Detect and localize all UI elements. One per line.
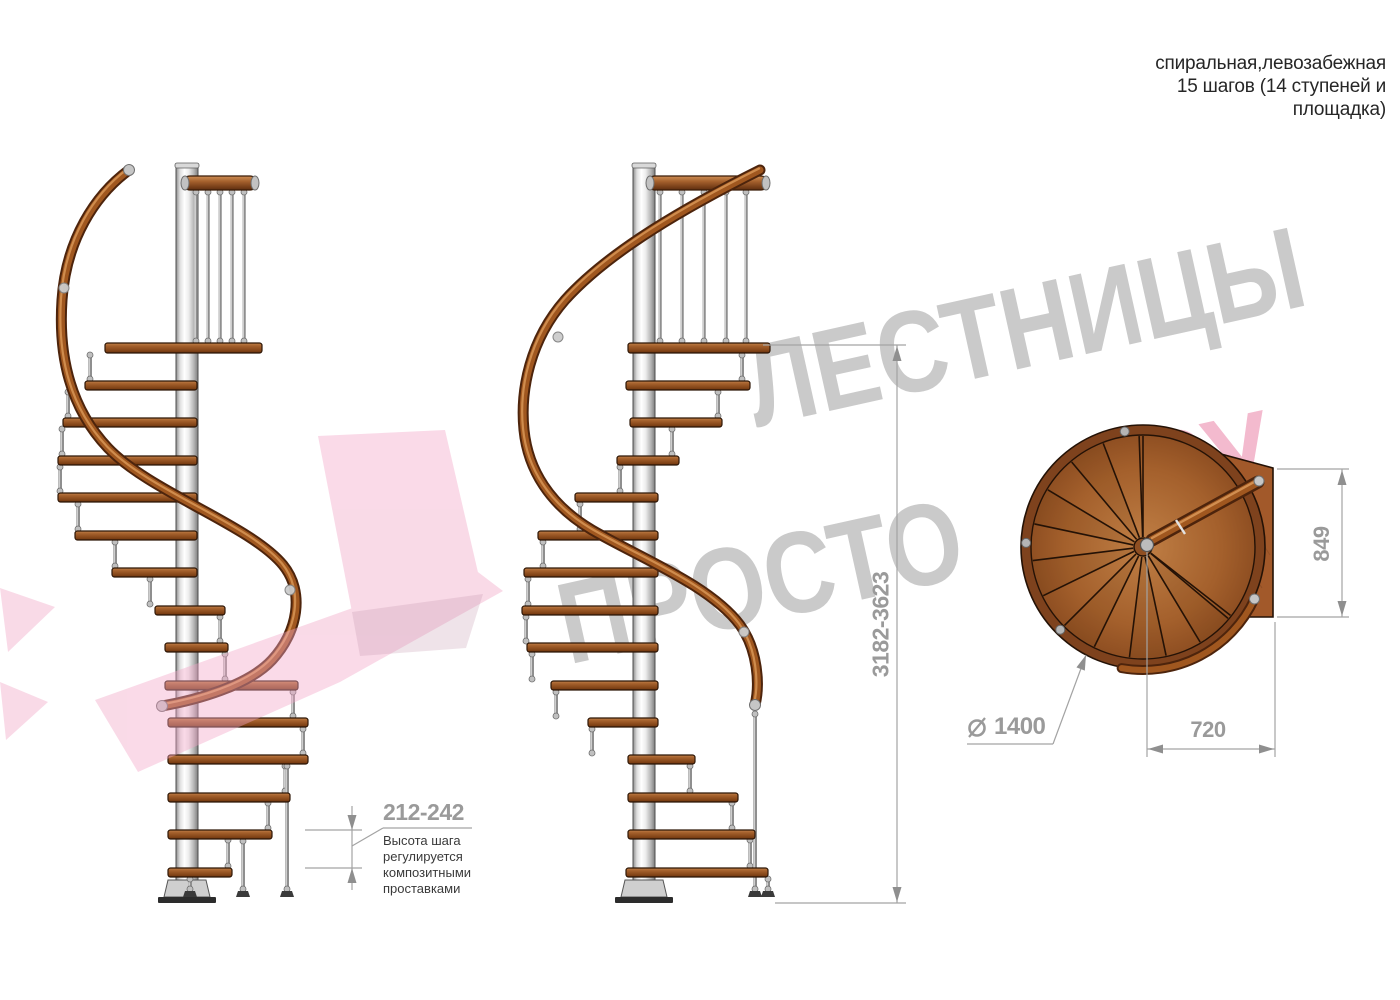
dimension-arrow xyxy=(1148,745,1163,754)
baluster-node xyxy=(529,676,535,682)
tread xyxy=(112,568,197,577)
tread xyxy=(626,868,768,877)
dimension-arrow xyxy=(893,887,902,902)
dimension-arrow xyxy=(1259,745,1274,754)
note-line-1: Высота шага xyxy=(383,833,471,849)
tread xyxy=(628,793,738,802)
diameter-icon xyxy=(966,715,988,739)
dimension-arrow xyxy=(893,346,902,361)
tread xyxy=(575,493,658,502)
step-height-note: Высота шага регулируется композитными пр… xyxy=(383,833,471,897)
tread xyxy=(75,531,197,540)
baluster-foot xyxy=(183,891,197,897)
tread xyxy=(551,681,658,690)
dim-step-height: 212-242 xyxy=(383,799,464,826)
pole-top-ball xyxy=(1141,539,1154,552)
dimension-line xyxy=(352,828,383,846)
base-plate xyxy=(615,897,673,903)
tread xyxy=(628,755,695,764)
tread xyxy=(522,606,658,615)
dim-radius-to-edge: 720 xyxy=(1168,717,1248,743)
baluster-foot xyxy=(748,891,762,897)
rim-baluster-dot xyxy=(1120,427,1129,436)
handrail-joint xyxy=(59,283,69,293)
tread xyxy=(626,381,750,390)
tread xyxy=(168,755,308,764)
handrail-joint xyxy=(739,627,749,637)
dimension-arrow xyxy=(1338,470,1347,485)
rod-end-cap xyxy=(1254,476,1264,486)
tread xyxy=(628,830,755,839)
dim-landing-depth: 849 xyxy=(1309,504,1335,584)
pole-cap xyxy=(632,163,656,168)
spec-line-3: площадка) xyxy=(966,98,1386,121)
tread xyxy=(168,718,308,727)
pole-cap xyxy=(175,163,199,168)
staircase-drawing xyxy=(0,0,1400,1000)
handrail-joint xyxy=(285,585,295,595)
dim-diameter: 1400 xyxy=(966,713,1045,741)
handrail-end-cap xyxy=(124,165,135,176)
rim-baluster-dot xyxy=(1022,538,1031,547)
note-line-3: композитными xyxy=(383,865,471,881)
drawing-sheet: ЛЕСТНИЦЫ ПРОСТО .РУ xyxy=(0,0,1400,1000)
rail-end-cap xyxy=(181,176,189,190)
tread xyxy=(168,830,272,839)
baluster-foot xyxy=(280,891,294,897)
baluster-foot xyxy=(236,891,250,897)
rail-end-cap xyxy=(251,176,259,190)
spec-title: спиральная,левозабежная 15 шагов (14 сту… xyxy=(966,52,1386,121)
baluster-node xyxy=(589,750,595,756)
top-rail xyxy=(183,176,257,190)
tread xyxy=(630,418,722,427)
tread xyxy=(617,456,679,465)
tread xyxy=(155,606,225,615)
tread xyxy=(588,718,658,727)
rail-end-cap xyxy=(762,176,770,190)
baluster-foot xyxy=(761,891,775,897)
pole-flange xyxy=(621,880,667,897)
dim-total-height: 3182-3623 xyxy=(868,545,895,705)
tread xyxy=(165,643,228,652)
handrail-joint xyxy=(553,332,563,342)
diameter-value: 1400 xyxy=(994,713,1045,741)
spec-line-1: спиральная,левозабежная xyxy=(966,52,1386,75)
tread xyxy=(168,868,232,877)
side-view-left xyxy=(57,163,308,903)
note-line-4: проставками xyxy=(383,881,471,897)
side-view-middle xyxy=(522,163,775,903)
tread xyxy=(524,568,658,577)
tread xyxy=(527,643,658,652)
baluster-node xyxy=(87,352,93,358)
note-line-2: регулируется xyxy=(383,849,471,865)
baluster-node xyxy=(553,713,559,719)
spec-line-2: 15 шагов (14 ступеней и xyxy=(966,75,1386,98)
handrail-end-cap xyxy=(157,701,168,712)
tread xyxy=(105,343,262,353)
base-plate xyxy=(158,897,216,903)
dimension-arrow xyxy=(348,868,357,883)
baluster-node xyxy=(752,711,758,717)
handrail-end-cap xyxy=(750,700,761,711)
dimension-arrow xyxy=(348,815,357,830)
baluster-node xyxy=(147,601,153,607)
tread xyxy=(628,343,770,353)
dimension-arrow xyxy=(1338,601,1347,616)
arc-handrail-cap xyxy=(1249,594,1259,604)
rail-end-cap xyxy=(646,176,654,190)
rim-baluster-dot xyxy=(1056,625,1065,634)
tread xyxy=(85,381,197,390)
tread xyxy=(168,793,290,802)
